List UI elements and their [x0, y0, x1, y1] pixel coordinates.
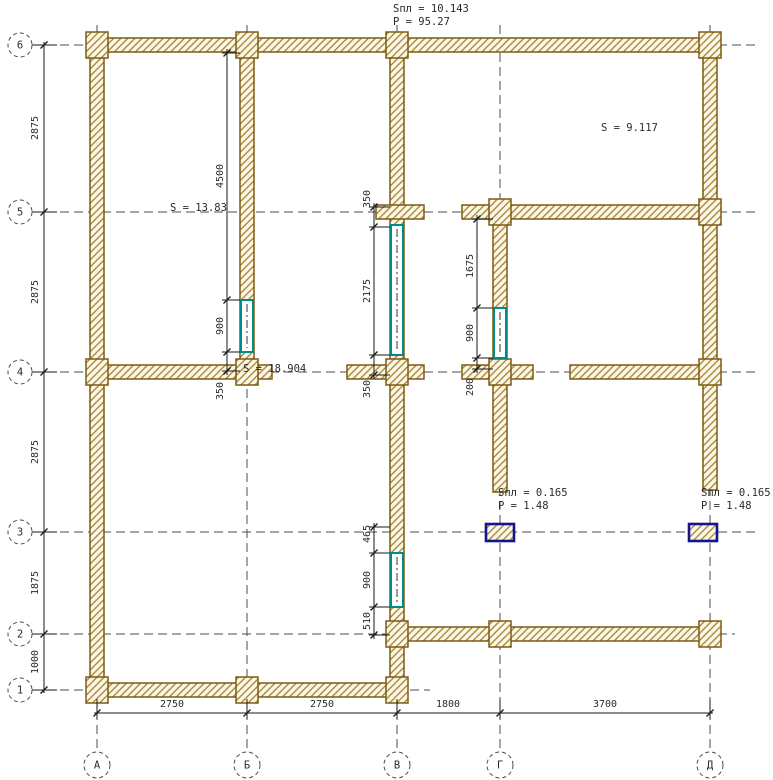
wall-pilaster: [86, 359, 108, 385]
area-annotation: P = 1.48: [498, 500, 549, 512]
dim-label: 4500: [215, 164, 226, 188]
floor-plan-page: 4500900350350217535016759002004659005102…: [0, 0, 773, 780]
area-annotation: S = 9.117: [601, 122, 658, 134]
dim-label: 2175: [362, 279, 373, 303]
bottom-dim-label: 3700: [593, 699, 617, 710]
wall-pilaster: [386, 32, 408, 58]
column-marker: [689, 524, 717, 541]
area-annotation: Sпл = 10.143: [393, 3, 469, 15]
left-dim-label: 2875: [30, 116, 41, 140]
bottom-dim-label: 2750: [310, 699, 334, 710]
row-axis-label: 1: [17, 685, 23, 697]
area-annotation: S = 13.83: [170, 202, 227, 214]
wall-pilaster: [489, 199, 511, 225]
wall-pilaster: [386, 359, 408, 385]
wall-pilaster: [236, 32, 258, 58]
dim-label: 350: [362, 190, 373, 208]
row-axis-label: 4: [17, 367, 23, 379]
left-dim-label: 2875: [30, 280, 41, 304]
area-annotation: Sпл = 0.165: [701, 487, 771, 499]
area-annotation: Sпл = 0.165: [498, 487, 568, 499]
col-axis-label: А: [94, 760, 101, 772]
area-annotation: P = 1.48: [701, 500, 752, 512]
column-marker: [486, 524, 514, 541]
wall: [570, 365, 718, 379]
col-axis-label: Г: [497, 760, 503, 772]
dim-label: 465: [362, 525, 373, 543]
dim-label: 510: [362, 612, 373, 630]
bottom-dim-label: 2750: [160, 699, 184, 710]
left-dim-label: 1000: [30, 650, 41, 674]
wall: [390, 627, 718, 641]
wall-pilaster: [699, 32, 721, 58]
col-axis-label: Д: [707, 760, 714, 772]
dim-label: 350: [215, 382, 226, 400]
dim-label: 1675: [465, 254, 476, 278]
dim-label: 200: [465, 378, 476, 396]
dim-label: 900: [362, 571, 373, 589]
drawing-background: [0, 0, 773, 780]
area-annotation: S = 18.904: [243, 363, 306, 375]
wall-pilaster: [386, 621, 408, 647]
area-annotation: P = 95.27: [393, 16, 450, 28]
col-axis-label: Б: [244, 760, 250, 772]
row-axis-label: 5: [17, 207, 23, 219]
dim-label: 900: [465, 324, 476, 342]
row-axis-label: 2: [17, 629, 23, 641]
col-axis-label: В: [394, 760, 400, 772]
left-dim-label: 2875: [30, 440, 41, 464]
left-dim-label: 1875: [30, 571, 41, 595]
wall-pilaster: [699, 199, 721, 225]
wall-pilaster: [699, 359, 721, 385]
wall-pilaster: [86, 32, 108, 58]
floor-plan-drawing: 4500900350350217535016759002004659005102…: [0, 0, 773, 780]
row-axis-label: 3: [17, 527, 23, 539]
wall: [703, 38, 717, 490]
dim-label: 900: [215, 317, 226, 335]
bottom-dim-label: 1800: [436, 699, 460, 710]
wall-pilaster: [699, 621, 721, 647]
dim-label: 350: [362, 380, 373, 398]
wall-pilaster: [489, 359, 511, 385]
wall-pilaster: [489, 621, 511, 647]
row-axis-label: 6: [17, 40, 23, 52]
